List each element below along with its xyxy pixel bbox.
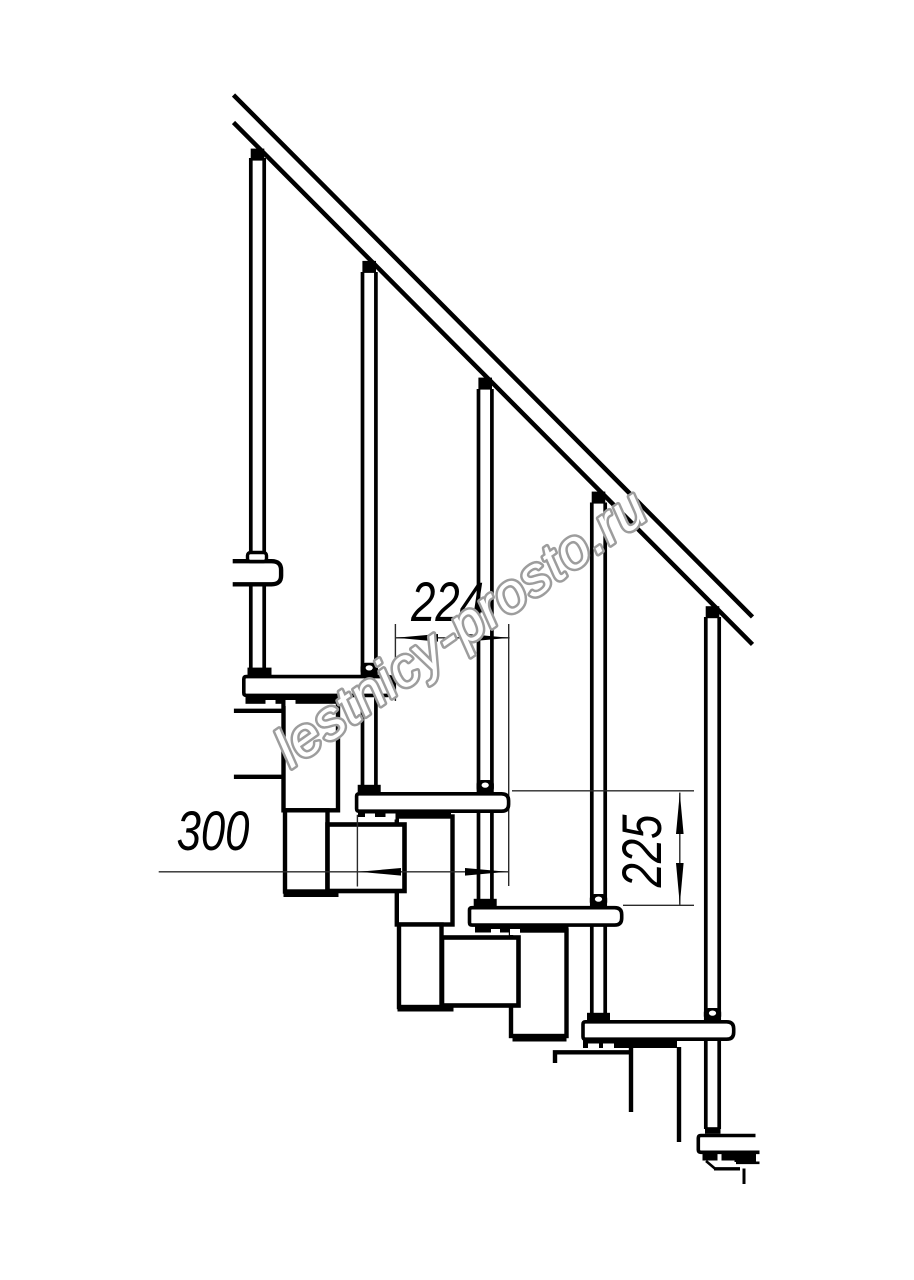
svg-text:225: 225 (611, 814, 673, 889)
svg-text:300: 300 (177, 800, 250, 862)
